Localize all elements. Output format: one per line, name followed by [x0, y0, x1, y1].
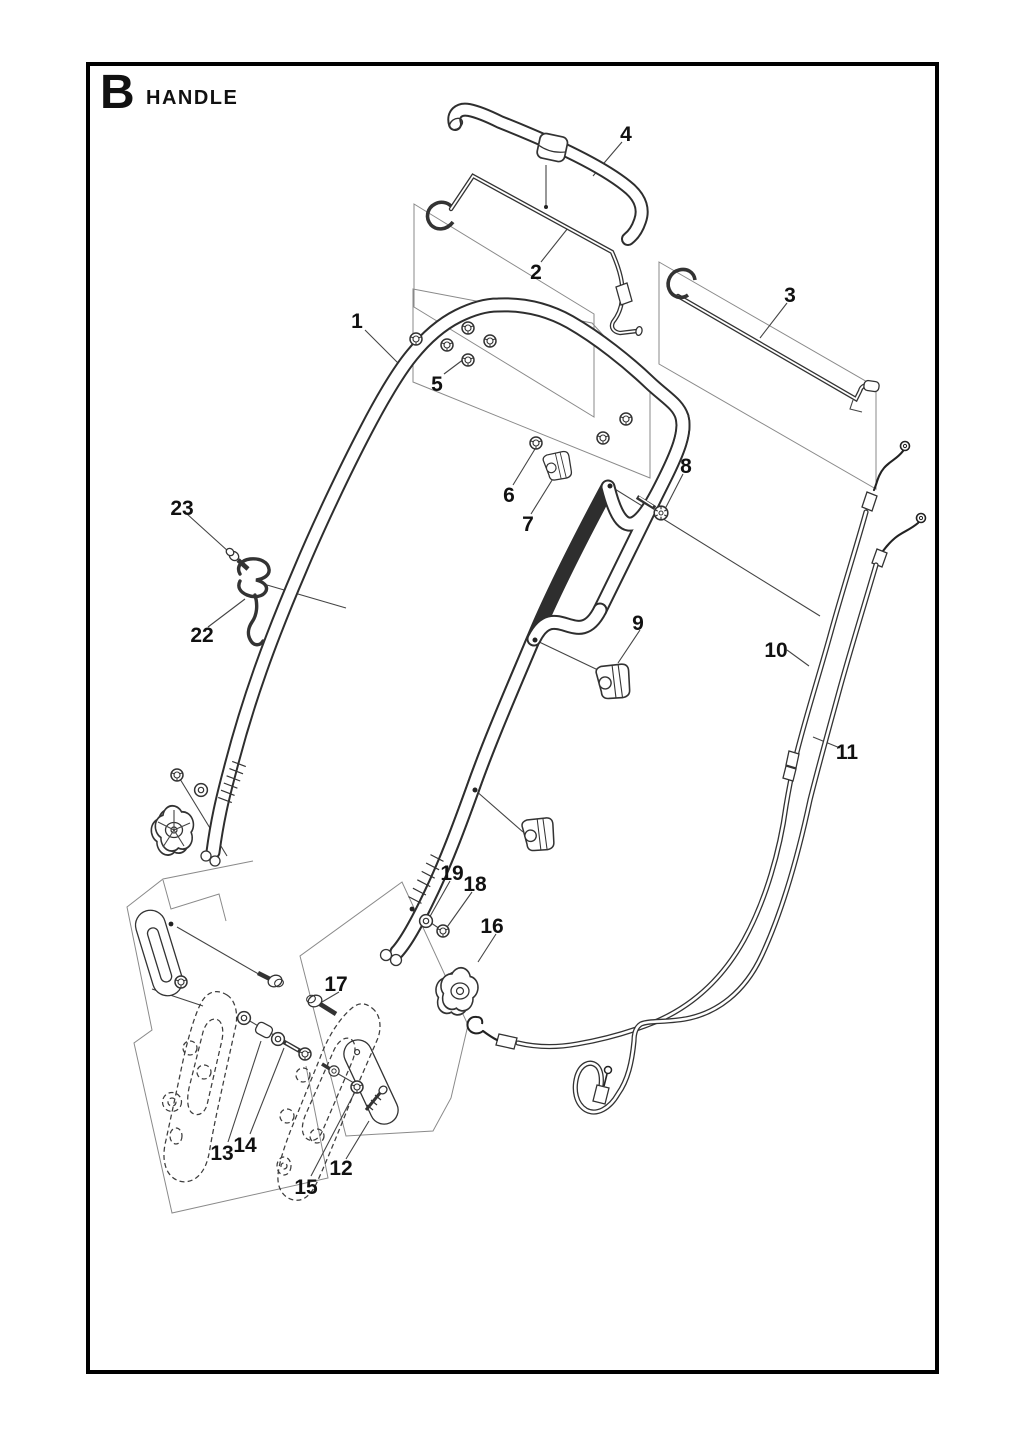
parts-diagram-page: B HANDLE [0, 0, 1024, 1435]
part-label-19: 19 [440, 862, 463, 885]
section-letter: B [100, 66, 135, 119]
part-label-13: 13 [210, 1142, 233, 1165]
knob-16 [433, 965, 481, 1016]
rod-end-fitting [863, 380, 879, 392]
part-label-8: 8 [680, 455, 692, 478]
part-label-12: 12 [329, 1157, 352, 1180]
brake-cable-11 [575, 514, 925, 1113]
bar-clamp [536, 132, 569, 162]
nut-18 [437, 925, 449, 937]
part-label-17: 17 [324, 973, 347, 996]
washer-19 [420, 915, 433, 928]
part-label-3: 3 [784, 284, 796, 307]
grip-hatching [218, 761, 443, 903]
part-label-11: 11 [836, 741, 859, 764]
left-knob-assembly [148, 769, 207, 857]
part-label-5: 5 [431, 373, 443, 396]
part-label-14: 14 [233, 1134, 257, 1157]
nut-15 [351, 1081, 363, 1093]
part-label-2: 2 [530, 261, 542, 284]
attachment-dots [473, 205, 613, 793]
upper-grip-bar [447, 110, 641, 239]
part-label-23: 23 [170, 497, 193, 520]
cable-clamp-lower [521, 815, 558, 854]
rope-guide-clip [239, 559, 270, 645]
page-border [88, 64, 937, 1372]
part-label-1: 1 [351, 310, 363, 333]
part-label-22: 22 [190, 624, 213, 647]
tube-end-loops [201, 851, 402, 966]
leader-lines [187, 142, 840, 1176]
cable-clamp [595, 661, 634, 702]
part-label-10: 10 [764, 639, 787, 662]
part-label-15: 15 [294, 1176, 318, 1199]
left-slot-plate [132, 907, 187, 1000]
part-label-16: 16 [480, 915, 503, 938]
rod-ferrule [616, 283, 632, 305]
brake-rod [668, 269, 879, 412]
rod-hook-end [428, 202, 453, 229]
part-label-9: 9 [632, 612, 644, 635]
screw-23 [225, 547, 248, 569]
rod-hook-end [668, 269, 695, 297]
part-label-6: 6 [503, 484, 515, 507]
part-label-7: 7 [522, 513, 534, 536]
section-title: HANDLE [146, 87, 238, 109]
cable-hook-end [467, 1017, 483, 1034]
part-label-18: 18 [463, 873, 487, 896]
cable-clip [542, 449, 575, 484]
bolt-plate [258, 973, 285, 989]
diagram-canvas: B HANDLE [0, 0, 1024, 1435]
plate-12 [339, 1035, 402, 1128]
cable-end-ring [605, 1067, 612, 1074]
rod-end-cap [635, 326, 643, 336]
nuts-right-bend [530, 413, 632, 449]
part-label-4: 4 [620, 123, 632, 146]
cable-end-ferrule [593, 1085, 609, 1104]
